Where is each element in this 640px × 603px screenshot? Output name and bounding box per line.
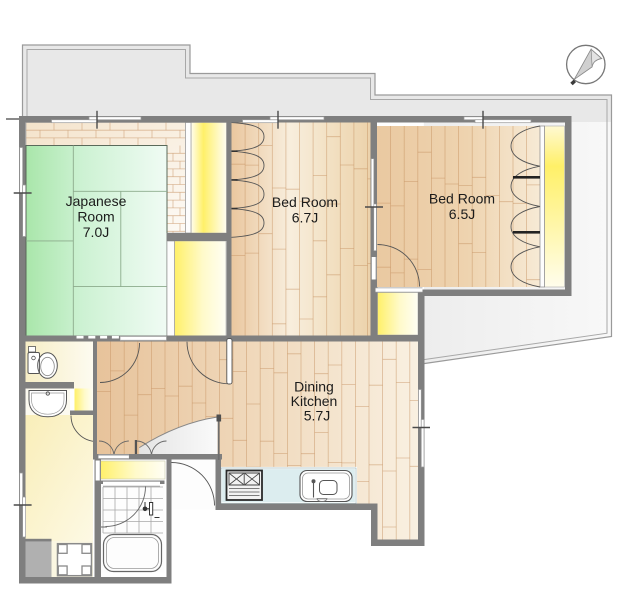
svg-text:Bed Room: Bed Room — [272, 194, 338, 210]
svg-text:Room: Room — [77, 209, 114, 225]
svg-text:Bed Room: Bed Room — [429, 191, 495, 207]
svg-text:6.5J: 6.5J — [449, 206, 475, 222]
svg-text:7.0J: 7.0J — [83, 224, 109, 240]
svg-text:Japanese: Japanese — [66, 193, 127, 209]
svg-text:6.7J: 6.7J — [292, 210, 318, 226]
svg-text:5.7J: 5.7J — [304, 408, 330, 424]
